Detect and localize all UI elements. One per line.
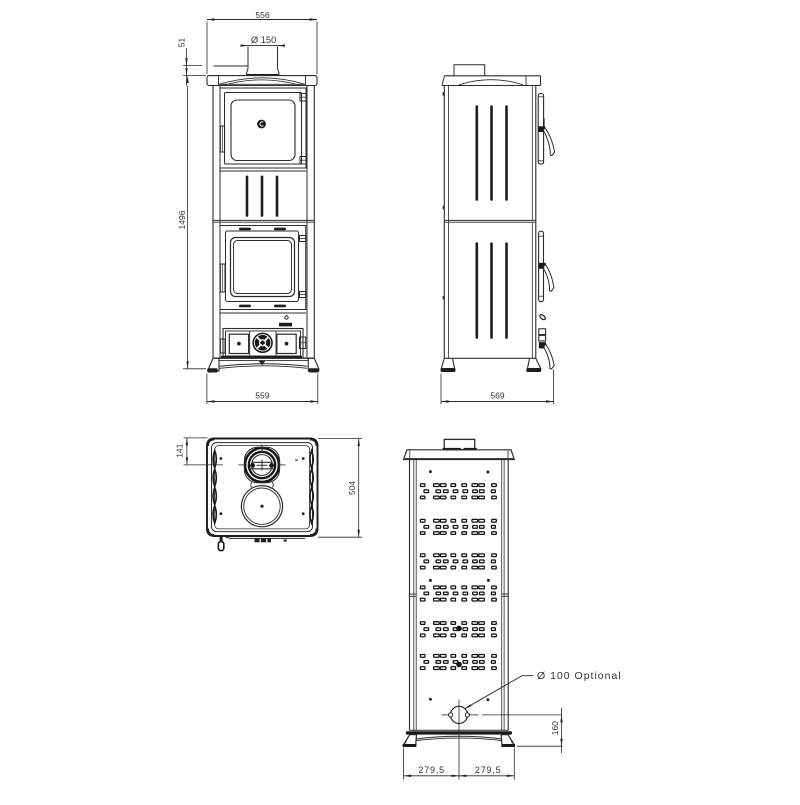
- svg-text:559: 559: [255, 391, 269, 401]
- svg-text:279,5: 279,5: [418, 765, 445, 775]
- svg-text:569: 569: [490, 391, 504, 401]
- svg-text:1496: 1496: [177, 210, 187, 229]
- svg-text:556: 556: [255, 10, 269, 20]
- svg-text:141: 141: [175, 443, 185, 457]
- svg-text:504: 504: [347, 481, 357, 495]
- svg-text:Ø 100 Optional: Ø 100 Optional: [537, 670, 622, 682]
- svg-text:51: 51: [176, 38, 186, 48]
- svg-text:279,5: 279,5: [475, 765, 502, 775]
- svg-text:160: 160: [550, 721, 560, 735]
- svg-text:Ø 150: Ø 150: [251, 34, 277, 45]
